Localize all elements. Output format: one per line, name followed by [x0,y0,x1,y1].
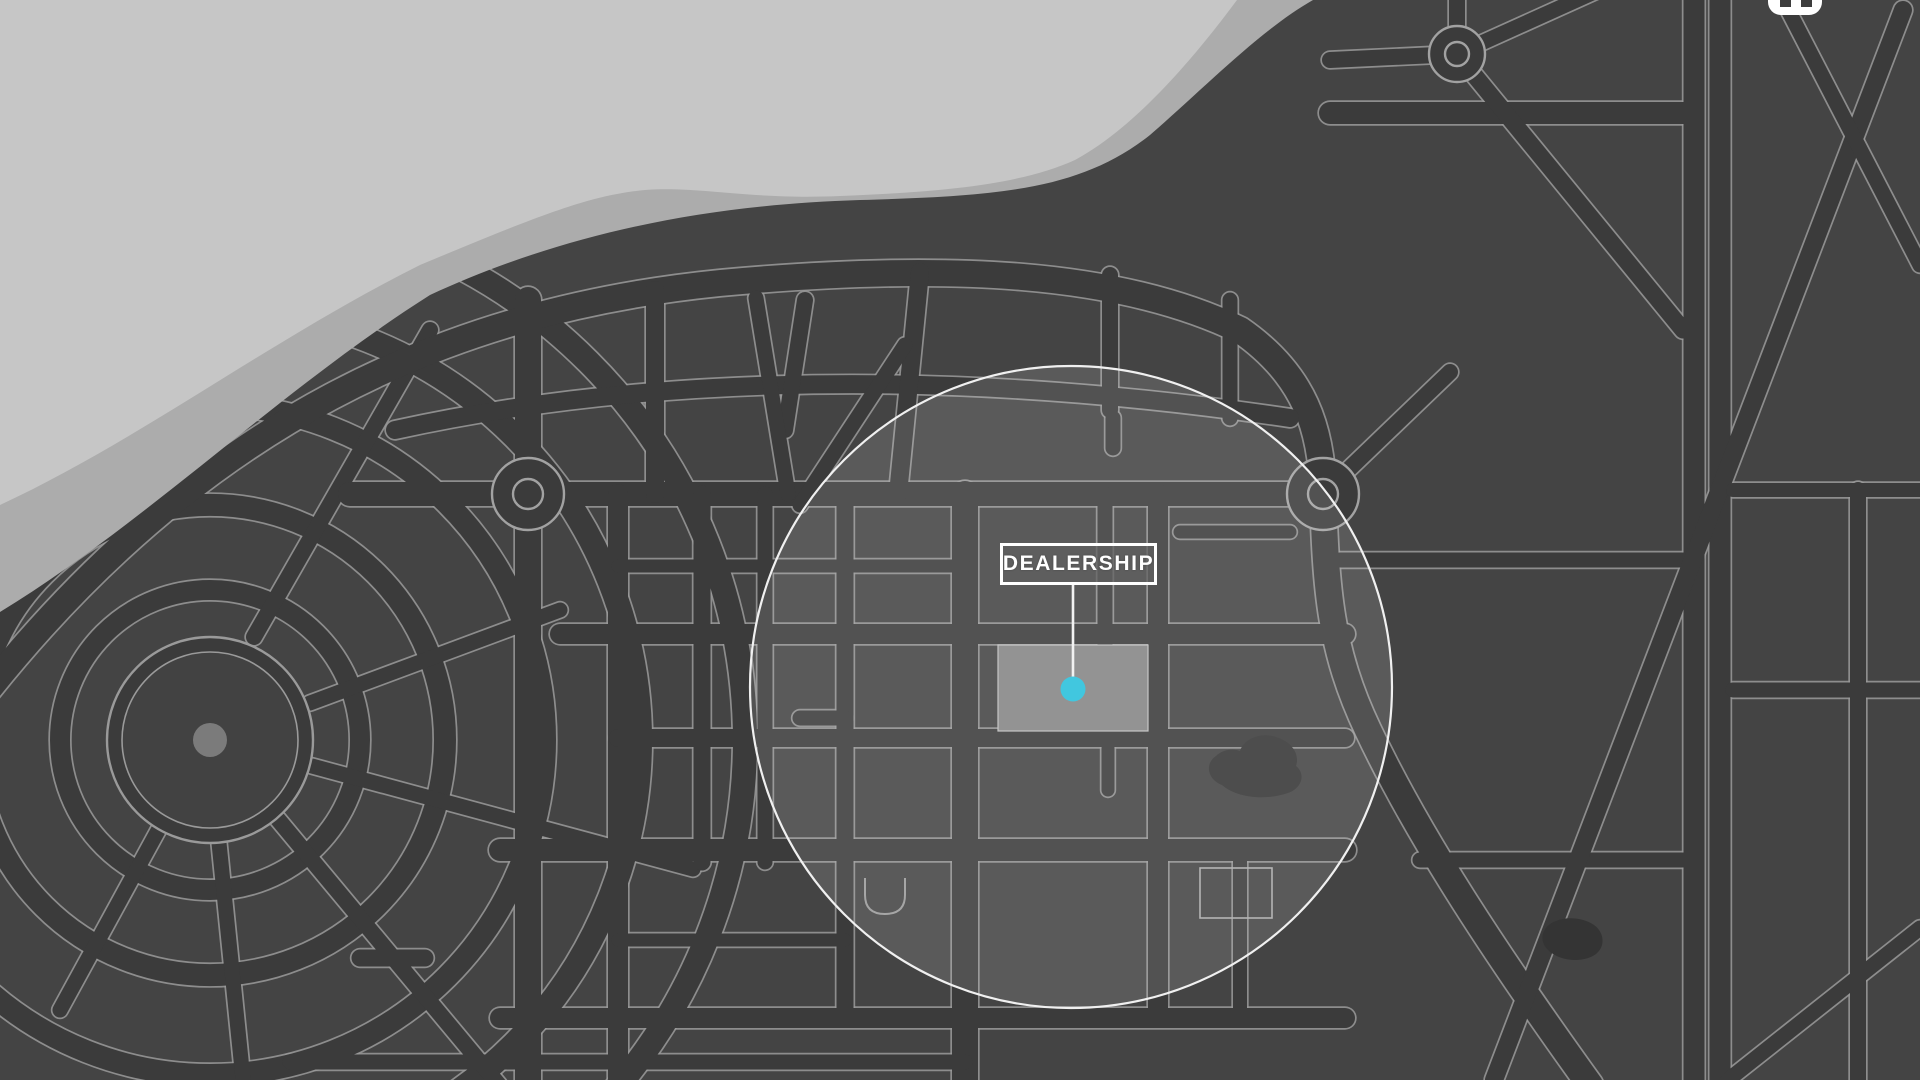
roundabout-west [492,458,564,530]
building-icon[interactable] [1768,0,1822,15]
roundabout-north [1429,26,1485,82]
dealership-label[interactable]: DEALERSHIP [1000,543,1157,585]
map-view[interactable]: DEALERSHIP [0,0,1920,1080]
dealership-marker[interactable] [1061,677,1086,702]
park-center-dot [193,723,227,757]
park-roundabout [107,637,313,843]
map-canvas[interactable] [0,0,1920,1080]
